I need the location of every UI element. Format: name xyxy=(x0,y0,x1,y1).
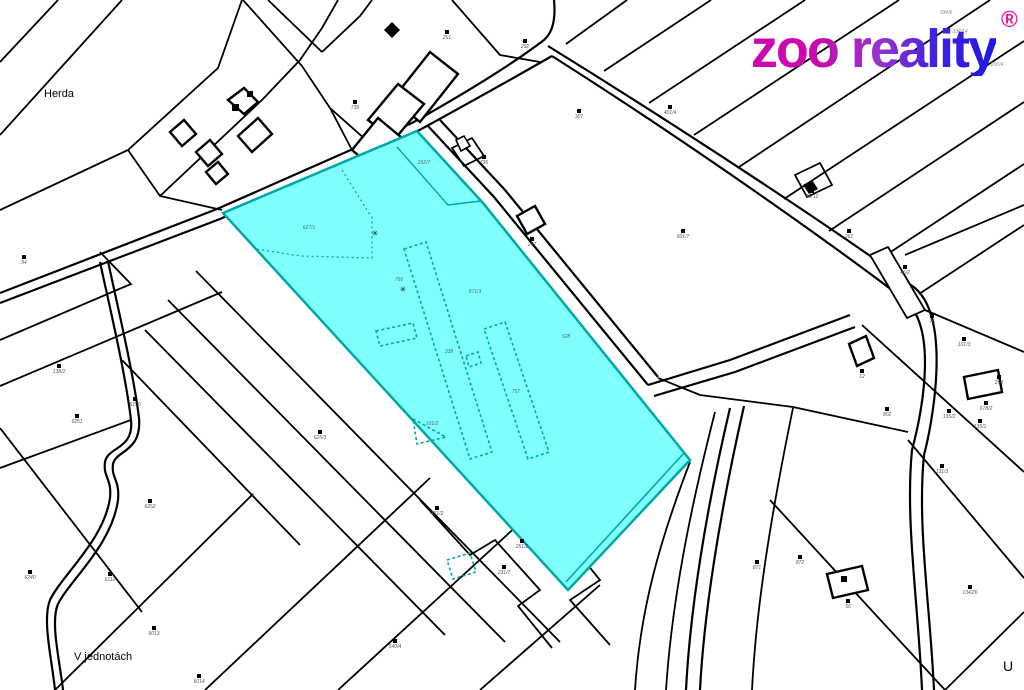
parcel-marker xyxy=(930,314,934,318)
parcel-number: 204 xyxy=(995,380,1003,386)
parcel-number: 6150 xyxy=(129,402,140,408)
parcel-marker xyxy=(984,401,988,405)
parcel-number: 135/2 xyxy=(943,414,956,420)
logo-word-reality: reality xyxy=(851,19,996,79)
parcel-marker xyxy=(520,539,524,543)
parcel-number: 12 xyxy=(859,374,865,380)
parcel-marker xyxy=(860,369,864,373)
parcel-marker xyxy=(940,464,944,468)
highlighted-parcel-number: 101/2 xyxy=(426,421,439,427)
parcel-number: 334/6 xyxy=(940,10,953,16)
parcel-marker xyxy=(968,585,972,589)
parcel-marker xyxy=(75,414,79,418)
parcel-marker xyxy=(133,397,137,401)
parcel-number: 6252 xyxy=(144,504,155,510)
logo-word-zoo: zoo xyxy=(751,19,838,79)
parcel-marker xyxy=(903,265,907,269)
parcel-number: 76 xyxy=(929,319,935,325)
zoo-reality-logo: zoo reality® xyxy=(751,22,996,76)
parcel-number: 6240 xyxy=(24,575,35,581)
parcel-number: 292 xyxy=(521,44,529,50)
parcel-number: 6112 xyxy=(105,577,116,583)
parcel-marker xyxy=(435,506,439,510)
parcel-number: 94 xyxy=(21,260,27,266)
corner-label: U xyxy=(1003,658,1013,674)
parcel-number: 291 xyxy=(443,35,451,41)
village-label: Herda xyxy=(44,88,74,100)
parcel-marker xyxy=(530,237,534,241)
parcel-number: 257 xyxy=(528,242,536,248)
parcel-marker xyxy=(28,570,32,574)
parcel-marker xyxy=(668,105,672,109)
parcel-marker xyxy=(445,30,449,34)
parcel-marker xyxy=(393,639,397,643)
highlighted-parcel-number: 871/3 xyxy=(469,289,482,295)
parcel-marker xyxy=(798,555,802,559)
parcel-marker xyxy=(502,565,506,569)
parcel-marker xyxy=(978,419,982,423)
parcel-number: 601/7 xyxy=(677,234,690,240)
parcel-number: 46/2 xyxy=(900,270,910,276)
highlighted-parcel-number: 627/1 xyxy=(303,225,316,231)
parcel-marker xyxy=(482,155,486,159)
parcel-marker xyxy=(997,375,1001,379)
parcel-number: 6013 xyxy=(148,631,159,637)
parcel-marker xyxy=(847,229,851,233)
cadastral-map-page: Herda V jednotách U 62406112601360146251… xyxy=(0,0,1024,690)
parcel-marker xyxy=(810,189,814,193)
parcel-number: 46/12 xyxy=(806,194,819,200)
parcel-number: 101/3 xyxy=(958,342,971,348)
parcel-number: 871 xyxy=(753,565,761,571)
highlighted-parcel-number: 628 xyxy=(562,334,570,340)
highlighted-parcel-number: 756 xyxy=(395,277,403,283)
parcel-number: 1342/6 xyxy=(962,590,977,596)
highlighted-parcel-number: 292/7 xyxy=(418,160,431,166)
parcel-marker xyxy=(197,674,201,678)
parcel-number: 540/4 xyxy=(389,644,402,650)
parcel-number: 802 xyxy=(883,412,891,418)
parcel-marker xyxy=(962,337,966,341)
parcel-marker xyxy=(846,599,850,603)
highlighted-parcel-number: 757 xyxy=(512,389,520,395)
landmark-symbol-icon: ✳ xyxy=(372,230,379,238)
parcel-marker xyxy=(681,229,685,233)
parcel-number: 625/3 xyxy=(314,435,327,441)
parcel-marker xyxy=(148,499,152,503)
parcel-number: 307 xyxy=(575,114,583,120)
parcel-number: 401/4 xyxy=(664,110,677,116)
parcel-number: 231/7 xyxy=(498,570,511,576)
parcel-number: 6014 xyxy=(193,679,204,685)
parcel-marker xyxy=(108,572,112,576)
registered-trademark-icon: ® xyxy=(1001,8,1018,31)
parcel-number: 138/2 xyxy=(53,369,66,375)
parcel-number: 678/2 xyxy=(980,406,993,412)
highlighted-parcel-number: 338 xyxy=(445,349,453,355)
parcel-number: 56 xyxy=(845,604,851,610)
parcel-number: 131/3 xyxy=(936,469,949,475)
parcel-number: 135/1 xyxy=(974,424,987,430)
highlighted-parcel xyxy=(223,131,690,590)
cadastral-map-drawing xyxy=(0,0,1024,690)
parcel-number: 261 xyxy=(845,234,853,240)
parcel-marker xyxy=(577,109,581,113)
parcel-number: 251/2 xyxy=(516,544,529,550)
parcel-marker xyxy=(353,100,357,104)
parcel-number: 872 xyxy=(796,560,804,566)
parcel-number: 6251 xyxy=(71,419,82,425)
parcel-marker xyxy=(755,560,759,564)
parcel-marker xyxy=(22,255,26,259)
parcel-marker xyxy=(947,409,951,413)
parcel-marker xyxy=(523,39,527,43)
parcel-marker xyxy=(885,407,889,411)
parcel-marker xyxy=(318,430,322,434)
parcel-number: 739 xyxy=(351,105,359,111)
parcel-marker xyxy=(152,626,156,630)
parcel-marker xyxy=(57,364,61,368)
parcel-number: 451/2 xyxy=(431,511,444,517)
landmark-symbol-icon: ✳ xyxy=(400,286,407,294)
field-label: V jednotách xyxy=(74,651,132,663)
parcel-number: 736 xyxy=(480,160,488,166)
